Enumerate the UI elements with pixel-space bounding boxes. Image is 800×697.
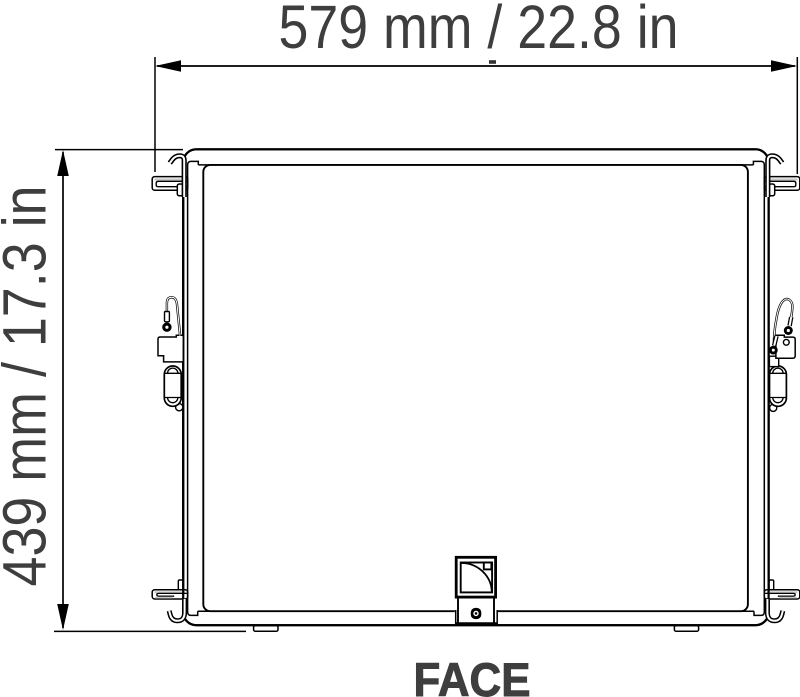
svg-text:439 mm / 17.3 in: 439 mm / 17.3 in (0, 186, 59, 587)
svg-text:579 mm / 22.8 in: 579 mm / 22.8 in (279, 0, 679, 61)
svg-text:FACE: FACE (414, 654, 531, 697)
